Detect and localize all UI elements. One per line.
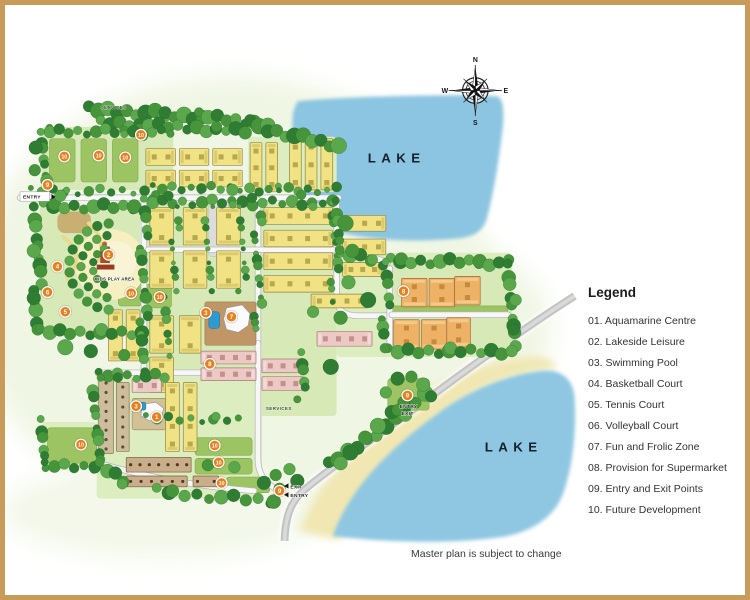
svg-text:5: 5 [64,309,68,316]
map-marker-10: 10 [153,291,165,303]
svg-text:3: 3 [134,403,138,410]
map-marker-10: 10 [215,477,227,489]
svg-text:9: 9 [278,488,282,495]
map-marker-9: 9 [273,485,285,497]
compass-w: W [442,88,449,95]
legend-item: 08. Provision for Supermarket [588,458,748,479]
entry-right-label: ENTRY [400,404,418,410]
map-marker-6: 6 [41,286,53,298]
map-marker-10: 10 [212,456,224,468]
lake-label-bottom: LAKE [485,439,543,454]
legend-item: 03. Swimming Pool [588,352,748,373]
map-marker-9: 9 [41,179,53,191]
legend-item: 06. Volleyball Court [588,415,748,436]
svg-text:10: 10 [212,444,218,450]
compass-n: N [473,57,478,64]
map-marker-10: 10 [75,438,87,450]
map-marker-4: 4 [51,260,63,272]
svg-text:1: 1 [155,414,159,421]
svg-text:10: 10 [122,156,128,162]
map-marker-10: 10 [135,129,147,141]
map-marker-3: 3 [200,307,212,319]
map-marker-10: 10 [125,287,137,299]
map-marker-8: 8 [397,285,409,297]
map-marker-10: 10 [209,439,221,451]
svg-text:10: 10 [219,481,225,487]
exit-bottom-label: EXIT [290,484,302,490]
map-marker-1: 1 [151,411,163,423]
map-marker-8: 8 [204,358,216,370]
svg-text:10: 10 [138,133,144,139]
entry-left-label: ENTRY [23,195,41,201]
svg-text:9: 9 [46,182,50,189]
legend-item: 02. Lakeside Leisure [588,331,748,352]
svg-text:2: 2 [107,252,111,259]
map-marker-7: 7 [225,311,237,323]
legend-item-list: 01. Aquamarine Centre02. Lakeside Leisur… [588,310,748,521]
svg-text:10: 10 [96,154,102,160]
legend-item: 01. Aquamarine Centre [588,310,748,331]
legend-item: 10. Future Development [588,500,748,521]
master-plan-page: N E S W LAKE LAKE ENTRY EXIT ENTRY ENTRY… [0,0,750,600]
svg-text:8: 8 [208,361,212,368]
entry-bottom-label: ENTRY [290,493,308,499]
svg-text:10: 10 [61,155,67,161]
compass-e: E [503,88,508,95]
legend-item: 04. Basketball Court [588,373,748,394]
map-marker-9: 9 [401,389,413,401]
svg-text:10: 10 [128,291,134,297]
svg-text:10: 10 [157,295,163,301]
map-marker-5: 5 [59,306,71,318]
legend-title: Legend [588,285,748,300]
legend-item: 05. Tennis Court [588,394,748,415]
map-marker-3: 3 [130,400,142,412]
map-marker-10: 10 [92,149,104,161]
disclaimer-note: Master plan is subject to change [411,548,562,560]
svg-text:8: 8 [402,288,406,295]
svg-text:10: 10 [216,460,222,466]
legend-item: 07. Fun and Frolic Zone [588,437,748,458]
kids-play-area-label: KIDS PLAY AREA [95,276,135,281]
map-marker-10: 10 [119,151,131,163]
exit-right-label: EXIT [402,411,414,417]
svg-text:3: 3 [204,310,208,317]
services-label-top: SERVICES [101,105,127,110]
svg-text:9: 9 [406,393,410,400]
legend-panel: Legend 01. Aquamarine Centre02. Lakeside… [588,285,748,521]
legend-item: 09. Entry and Exit Points [588,479,748,500]
services-label-bottom: SERVICES [266,406,292,411]
svg-text:10: 10 [78,443,84,449]
svg-text:6: 6 [46,289,50,296]
svg-text:7: 7 [230,314,234,321]
svg-text:4: 4 [56,264,60,271]
map-marker-2: 2 [102,249,114,261]
lake-label-top: LAKE [368,150,426,165]
compass-s: S [473,120,478,127]
map-marker-10: 10 [58,150,70,162]
